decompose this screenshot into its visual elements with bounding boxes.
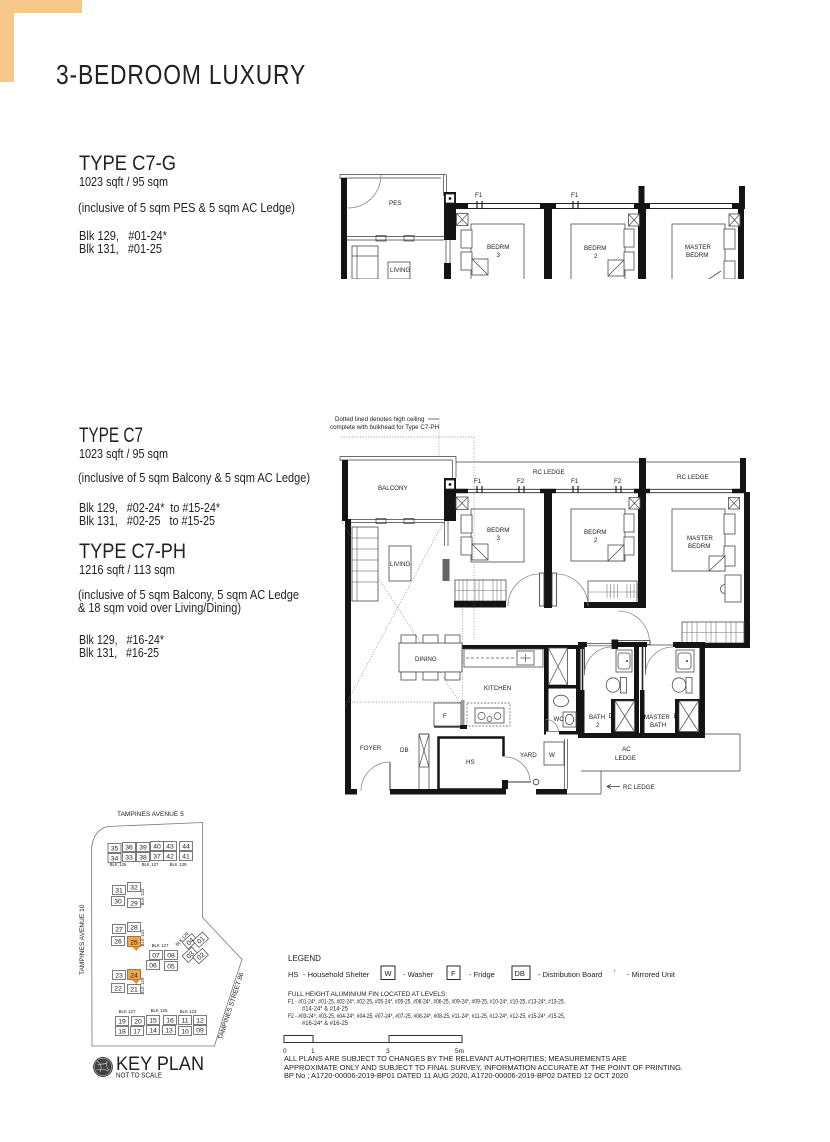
svg-text:F1: F1	[571, 478, 579, 485]
svg-text:RC LEDGE: RC LEDGE	[533, 469, 565, 476]
svg-text:D: D	[674, 713, 679, 720]
svg-text:(inclusive of 5 sqm Balcony &: (inclusive of 5 sqm Balcony & 5 sqm AC L…	[78, 471, 310, 485]
svg-text:17: 17	[133, 1029, 141, 1036]
svg-text:Blk 131, #01-25: Blk 131, #01-25	[79, 242, 162, 256]
svg-text:Blk 129, #16-24*: Blk 129, #16-24*	[79, 633, 164, 647]
svg-text:BLK 125: BLK 125	[151, 1008, 168, 1013]
svg-text:DINING: DINING	[415, 656, 437, 663]
svg-text:Blk 131, #02-25 to #15-25: Blk 131, #02-25 to #15-25	[79, 514, 215, 528]
svg-text:TYPE C7-G: TYPE C7-G	[79, 152, 176, 175]
svg-text:BLK 139: BLK 139	[170, 862, 187, 867]
svg-text:TAMPINES AVENUE 5: TAMPINES AVENUE 5	[117, 811, 184, 818]
svg-text:23: 23	[115, 973, 123, 980]
svg-text:D: D	[609, 713, 614, 720]
svg-text:09: 09	[196, 1028, 204, 1035]
svg-text:15: 15	[149, 1018, 157, 1025]
svg-text:TYPE C7: TYPE C7	[79, 424, 143, 447]
svg-text:W: W	[385, 969, 393, 978]
svg-text:18: 18	[118, 1029, 126, 1036]
svg-text:3: 3	[497, 252, 501, 259]
svg-text:43: 43	[166, 844, 174, 851]
svg-text:44: 44	[182, 844, 190, 851]
svg-text:BLK 137: BLK 137	[142, 862, 159, 867]
svg-text:35: 35	[111, 846, 119, 853]
svg-text:AC: AC	[622, 746, 631, 753]
svg-text:39: 39	[139, 845, 147, 852]
svg-text:10: 10	[181, 1029, 189, 1036]
svg-text:DB: DB	[400, 747, 409, 754]
svg-text:F: F	[451, 969, 456, 978]
svg-text:BATH: BATH	[589, 714, 605, 721]
svg-text:2: 2	[594, 537, 598, 544]
svg-text:MASTER: MASTER	[687, 535, 713, 542]
svg-text:05: 05	[167, 964, 175, 971]
svg-text:BLK 123: BLK 123	[180, 1009, 197, 1014]
svg-text:06: 06	[149, 963, 157, 970]
svg-text:Blk 129, #02-24* to #15-24*: Blk 129, #02-24* to #15-24*	[79, 501, 220, 515]
svg-text:TAMPINES AVENUE 10: TAMPINES AVENUE 10	[79, 904, 86, 975]
svg-text:25: 25	[130, 940, 138, 947]
svg-text:LIVING: LIVING	[390, 267, 410, 274]
svg-text:BEDRM: BEDRM	[584, 245, 606, 252]
svg-text:DB: DB	[515, 969, 525, 978]
svg-text:RC LEDGE: RC LEDGE	[623, 784, 655, 791]
svg-text:YARD: YARD	[520, 752, 537, 759]
svg-text:- Distribution Board: - Distribution Board	[538, 970, 602, 979]
svg-text:30: 30	[114, 899, 122, 906]
svg-text:08: 08	[167, 953, 175, 960]
svg-text:PES: PES	[389, 200, 401, 207]
svg-text:26: 26	[114, 939, 122, 946]
svg-text:F2 - #03-24*, #03-25, #04-24*,: F2 - #03-24*, #03-25, #04-24*, #04-25, #…	[288, 1014, 565, 1020]
svg-text:TAMPINES STREET 86: TAMPINES STREET 86	[217, 971, 245, 1040]
svg-text:07: 07	[152, 953, 160, 960]
svg-text:Blk 131, #16-25: Blk 131, #16-25	[79, 646, 159, 660]
svg-text:16: 16	[166, 1018, 174, 1025]
svg-text:28: 28	[130, 925, 138, 932]
svg-text:31: 31	[115, 888, 123, 895]
svg-text:BALCONY: BALCONY	[378, 485, 408, 492]
svg-text:BLK 127: BLK 127	[119, 1009, 136, 1014]
svg-text:KITCHEN: KITCHEN	[484, 685, 511, 692]
svg-text:27: 27	[115, 927, 123, 934]
svg-text:NOT TO SCALE: NOT TO SCALE	[116, 1071, 162, 1080]
svg-text:ALL PLANS ARE SUBJECT TO CHANG: ALL PLANS ARE SUBJECT TO CHANGES BY THE …	[284, 1054, 627, 1063]
svg-text:BEDRM: BEDRM	[686, 252, 708, 259]
svg-text:42: 42	[166, 854, 174, 861]
svg-text:Dotted lined denotes high ceil: Dotted lined denotes high ceiling	[335, 416, 425, 423]
svg-text:(inclusive of 5 sqm PES & 5 sq: (inclusive of 5 sqm PES & 5 sqm AC Ledge…	[78, 201, 295, 215]
svg-text:F2: F2	[614, 478, 622, 485]
svg-text:#16-24* & #16-25: #16-24* & #16-25	[302, 1021, 349, 1027]
svg-text:Blk 129, #01-24*: Blk 129, #01-24*	[79, 229, 167, 243]
svg-text:BLK 133: BLK 133	[140, 888, 145, 905]
svg-text:FOYER: FOYER	[360, 745, 382, 752]
svg-text:13: 13	[165, 1028, 173, 1035]
svg-text:36: 36	[125, 845, 133, 852]
svg-text:F1: F1	[474, 478, 482, 485]
svg-text:1216 sqft / 113 sqm: 1216 sqft / 113 sqm	[79, 563, 175, 577]
svg-text:20: 20	[134, 1019, 142, 1026]
svg-text:14: 14	[149, 1028, 157, 1035]
svg-text:MASTER: MASTER	[685, 244, 711, 251]
svg-text:19: 19	[118, 1019, 126, 1026]
svg-text:3: 3	[497, 535, 501, 542]
svg-text:LIVING: LIVING	[390, 561, 410, 568]
svg-text:F2: F2	[517, 478, 525, 485]
svg-text:LEDGE: LEDGE	[615, 755, 636, 762]
svg-text:F1 - #01-24*, #01-25, #02-24*,: F1 - #01-24*, #01-25, #02-24*, #02-25, #…	[288, 1000, 565, 1006]
svg-text:24: 24	[130, 973, 138, 980]
svg-text:BEDRM: BEDRM	[487, 244, 509, 251]
svg-text:W: W	[549, 752, 555, 759]
svg-text:F: F	[443, 713, 447, 720]
svg-text:29: 29	[130, 901, 138, 908]
svg-text:- Mirrored Unit: - Mirrored Unit	[627, 970, 676, 979]
svg-text:#14-24* & #14-25: #14-24* & #14-25	[302, 1007, 349, 1013]
svg-text:HS: HS	[466, 759, 475, 766]
svg-text:2: 2	[594, 253, 598, 260]
svg-text:BEDRM: BEDRM	[584, 529, 606, 536]
svg-text:38: 38	[139, 855, 147, 862]
svg-text:11: 11	[181, 1018, 188, 1025]
svg-text:MASTER: MASTER	[644, 714, 670, 721]
svg-text:- Fridge: - Fridge	[469, 970, 495, 979]
svg-text:BATH: BATH	[650, 722, 666, 729]
svg-text:1023 sqft / 95 sqm: 1023 sqft / 95 sqm	[79, 447, 168, 461]
svg-text:33: 33	[125, 855, 133, 862]
svg-text:1023 sqft / 95 sqm: 1023 sqft / 95 sqm	[79, 175, 168, 189]
svg-text:2: 2	[596, 722, 600, 729]
svg-text:WC: WC	[554, 716, 565, 723]
svg-text:complete with bulkhead for Typ: complete with bulkhead for Type C7-PH	[330, 424, 439, 431]
svg-text:37: 37	[153, 854, 161, 861]
svg-text:21: 21	[130, 987, 138, 994]
svg-text:(inclusive of 5 sqm Balcony, 5: (inclusive of 5 sqm Balcony, 5 sqm AC Le…	[78, 588, 299, 602]
svg-text:40: 40	[153, 844, 161, 851]
svg-text:- Household Shelter: - Household Shelter	[303, 970, 370, 979]
svg-text:& 18 sqm void over Living/Dini: & 18 sqm void over Living/Dining)	[78, 601, 241, 615]
svg-text:32: 32	[130, 885, 138, 892]
svg-text:BLK 135: BLK 135	[110, 862, 127, 867]
svg-text:FULL HEIGHT ALUMINIUM FIN LOCA: FULL HEIGHT ALUMINIUM FIN LOCATED AT LEV…	[288, 992, 447, 998]
svg-text:': '	[614, 968, 616, 977]
svg-text:RC LEDGE: RC LEDGE	[677, 474, 709, 481]
svg-text:- Washer: - Washer	[403, 970, 434, 979]
svg-text:TYPE C7-PH: TYPE C7-PH	[79, 540, 186, 563]
svg-text:BLK 129: BLK 129	[140, 977, 145, 994]
svg-text:BEDRM: BEDRM	[487, 527, 509, 534]
svg-text:BEDRM: BEDRM	[688, 543, 710, 550]
svg-text:41: 41	[182, 854, 190, 861]
svg-text:BLK 127: BLK 127	[152, 943, 169, 948]
svg-text:F1: F1	[571, 192, 579, 199]
svg-text:3-BEDROOM LUXURY: 3-BEDROOM LUXURY	[56, 59, 306, 90]
svg-text:22: 22	[114, 986, 122, 993]
svg-text:HS: HS	[288, 970, 298, 979]
svg-text:BP No ; A1720-00006-2019-BP01: BP No ; A1720-00006-2019-BP01 DATED 11 A…	[284, 1071, 628, 1080]
svg-text:BLK 131: BLK 131	[140, 929, 145, 946]
svg-text:F1: F1	[475, 192, 483, 199]
svg-text:LEGEND: LEGEND	[288, 954, 321, 963]
svg-text:12: 12	[196, 1018, 204, 1025]
